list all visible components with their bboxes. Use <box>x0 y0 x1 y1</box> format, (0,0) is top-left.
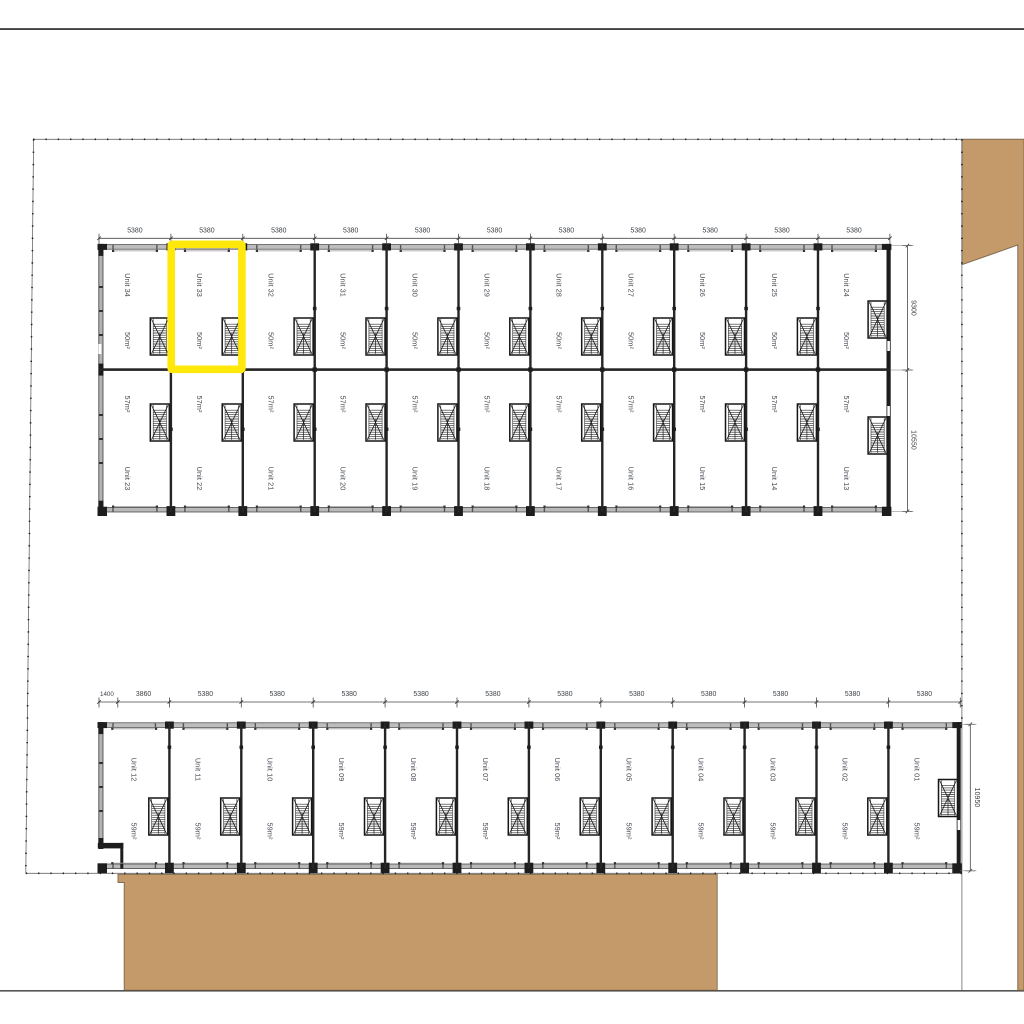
svg-text:50m²: 50m² <box>123 332 132 349</box>
svg-text:3860: 3860 <box>136 691 151 698</box>
svg-text:57m²: 57m² <box>770 395 779 412</box>
svg-text:5380: 5380 <box>199 228 214 235</box>
svg-text:59m²: 59m² <box>912 822 921 839</box>
svg-text:Unit 16: Unit 16 <box>626 467 635 491</box>
svg-text:5380: 5380 <box>557 691 572 698</box>
svg-text:5380: 5380 <box>198 691 213 698</box>
svg-text:5380: 5380 <box>846 228 861 235</box>
svg-text:5380: 5380 <box>343 228 358 235</box>
svg-text:10550: 10550 <box>909 430 916 450</box>
svg-text:Unit 21: Unit 21 <box>267 467 276 491</box>
svg-text:59m²: 59m² <box>409 822 418 839</box>
svg-text:57m²: 57m² <box>483 395 492 412</box>
svg-text:5380: 5380 <box>703 228 718 235</box>
svg-text:5380: 5380 <box>629 691 644 698</box>
svg-text:Unit 07: Unit 07 <box>481 758 490 782</box>
svg-text:59m²: 59m² <box>337 822 346 839</box>
svg-text:5380: 5380 <box>631 228 646 235</box>
svg-text:5380: 5380 <box>415 228 430 235</box>
svg-text:50m²: 50m² <box>626 332 635 349</box>
svg-text:57m²: 57m² <box>267 395 276 412</box>
svg-text:57m²: 57m² <box>123 395 132 412</box>
svg-text:9300: 9300 <box>909 300 916 316</box>
svg-text:Unit 24: Unit 24 <box>842 273 851 297</box>
svg-text:Unit 06: Unit 06 <box>553 758 562 782</box>
svg-text:Unit 01: Unit 01 <box>912 758 921 782</box>
svg-text:50m²: 50m² <box>554 332 563 349</box>
svg-text:50m²: 50m² <box>842 332 851 349</box>
svg-text:Unit 11: Unit 11 <box>193 758 202 781</box>
svg-text:50m²: 50m² <box>267 332 276 349</box>
svg-text:Unit 10: Unit 10 <box>265 758 274 782</box>
svg-text:5380: 5380 <box>342 691 357 698</box>
svg-text:59m²: 59m² <box>265 822 274 839</box>
svg-text:Unit 04: Unit 04 <box>697 758 706 782</box>
svg-text:5380: 5380 <box>485 691 500 698</box>
svg-text:Unit 15: Unit 15 <box>698 467 707 491</box>
svg-text:57m²: 57m² <box>195 395 204 412</box>
svg-text:Unit 18: Unit 18 <box>483 467 492 491</box>
svg-text:Unit 03: Unit 03 <box>769 758 778 782</box>
svg-text:59m²: 59m² <box>193 822 202 839</box>
svg-text:Unit 08: Unit 08 <box>409 758 418 782</box>
svg-text:Unit 17: Unit 17 <box>554 467 563 491</box>
svg-text:Unit 02: Unit 02 <box>841 758 850 782</box>
svg-text:Unit 28: Unit 28 <box>554 273 563 297</box>
svg-text:57m²: 57m² <box>626 395 635 412</box>
svg-text:Unit 31: Unit 31 <box>339 273 348 297</box>
svg-text:57m²: 57m² <box>554 395 563 412</box>
svg-text:59m²: 59m² <box>697 822 706 839</box>
svg-text:5380: 5380 <box>845 691 860 698</box>
svg-text:59m²: 59m² <box>481 822 490 839</box>
svg-text:Unit 19: Unit 19 <box>411 467 420 491</box>
svg-text:5380: 5380 <box>917 691 932 698</box>
svg-text:50m²: 50m² <box>770 332 779 349</box>
svg-text:Unit 09: Unit 09 <box>337 758 346 782</box>
svg-text:5380: 5380 <box>774 228 789 235</box>
svg-text:5380: 5380 <box>559 228 574 235</box>
svg-text:5380: 5380 <box>127 228 142 235</box>
svg-text:Unit 27: Unit 27 <box>626 273 635 297</box>
svg-text:5380: 5380 <box>773 691 788 698</box>
svg-text:59m²: 59m² <box>553 822 562 839</box>
svg-text:5380: 5380 <box>413 691 428 698</box>
svg-text:Unit 22: Unit 22 <box>195 467 204 491</box>
svg-text:57m²: 57m² <box>842 395 851 412</box>
svg-text:Unit 12: Unit 12 <box>130 758 139 782</box>
svg-text:50m²: 50m² <box>339 332 348 349</box>
svg-text:57m²: 57m² <box>411 395 420 412</box>
svg-text:Unit 33: Unit 33 <box>195 273 204 297</box>
svg-text:50m²: 50m² <box>483 332 492 349</box>
svg-text:Unit 20: Unit 20 <box>339 467 348 491</box>
svg-text:59m²: 59m² <box>625 822 634 839</box>
svg-text:5380: 5380 <box>487 228 502 235</box>
svg-text:10950: 10950 <box>973 788 980 808</box>
svg-text:5380: 5380 <box>701 691 716 698</box>
svg-text:Unit 30: Unit 30 <box>411 273 420 297</box>
svg-text:Unit 13: Unit 13 <box>842 467 851 491</box>
svg-text:Unit 05: Unit 05 <box>625 758 634 782</box>
svg-text:59m²: 59m² <box>841 822 850 839</box>
svg-text:Unit 29: Unit 29 <box>483 273 492 297</box>
svg-text:50m²: 50m² <box>411 332 420 349</box>
svg-text:57m²: 57m² <box>698 395 707 412</box>
svg-text:5380: 5380 <box>271 228 286 235</box>
svg-text:59m²: 59m² <box>130 822 139 839</box>
svg-text:50m²: 50m² <box>698 332 707 349</box>
svg-text:Unit 32: Unit 32 <box>267 273 276 297</box>
svg-text:5380: 5380 <box>270 691 285 698</box>
svg-text:1400: 1400 <box>100 691 114 698</box>
svg-text:Unit 26: Unit 26 <box>698 273 707 297</box>
svg-text:59m²: 59m² <box>769 822 778 839</box>
svg-text:Unit 34: Unit 34 <box>123 273 132 297</box>
svg-text:Unit 14: Unit 14 <box>770 467 779 491</box>
svg-text:Unit 25: Unit 25 <box>770 273 779 297</box>
svg-text:Unit 23: Unit 23 <box>123 467 132 491</box>
svg-text:50m²: 50m² <box>195 332 204 349</box>
svg-text:57m²: 57m² <box>339 395 348 412</box>
